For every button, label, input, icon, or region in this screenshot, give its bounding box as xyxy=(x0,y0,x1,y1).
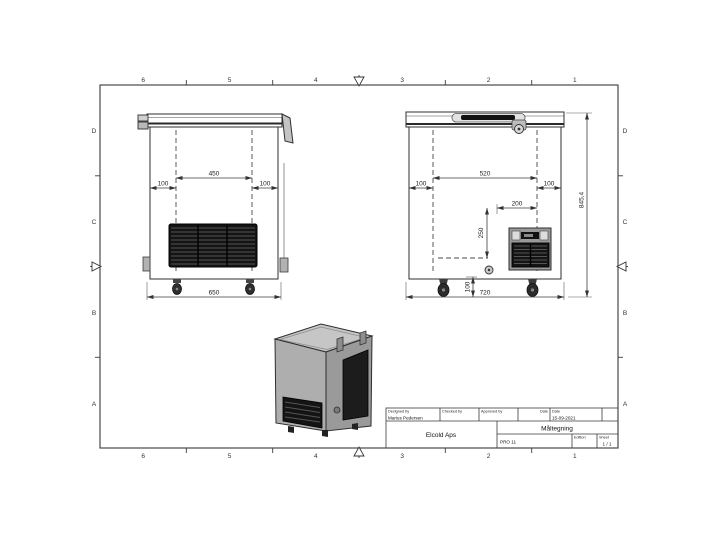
drawing-number: PRO 11 xyxy=(500,440,516,445)
lid-handle xyxy=(461,115,515,120)
dim-offset-y: 250 xyxy=(478,227,485,238)
zone-label-left: C xyxy=(92,219,97,226)
hinge-block xyxy=(138,122,148,129)
dim-offset-x: 200 xyxy=(512,201,523,208)
zone-label-top: 3 xyxy=(400,77,404,84)
date2-label: Date xyxy=(552,410,560,414)
designed-by-label: Designed by xyxy=(388,410,409,414)
drain-plug xyxy=(485,266,493,274)
dim-left-inset: 100 xyxy=(158,181,169,188)
iso-foot xyxy=(288,426,294,433)
sheet-label: Sheet xyxy=(599,436,610,440)
drawing-title: Måltegning xyxy=(541,425,573,433)
iso-hinge xyxy=(360,331,366,345)
zone-label-bottom: 1 xyxy=(573,453,577,460)
iso-foot xyxy=(322,430,328,437)
zone-label-bottom: 4 xyxy=(314,453,318,460)
center-mark-right xyxy=(617,262,628,271)
freezer-lid xyxy=(147,114,282,127)
zone-label-top: 2 xyxy=(487,77,491,84)
caster-wheel xyxy=(173,279,182,295)
center-mark-left xyxy=(90,262,101,271)
hinge-bracket-lower xyxy=(280,258,288,272)
zone-label-bottom: 5 xyxy=(228,453,232,460)
company-name: Elcold Aps xyxy=(426,432,457,439)
lid-lock xyxy=(512,120,526,134)
dim-left-inset: 100 xyxy=(416,181,427,188)
iso-hinge xyxy=(337,337,343,352)
checked-by-label: Checked by xyxy=(442,410,462,414)
sheet-value: 1 / 1 xyxy=(603,442,612,447)
lid-corner-bracket xyxy=(282,114,293,143)
caster-wheel xyxy=(246,279,255,295)
rear-view: 450 100 100 650 xyxy=(138,114,293,300)
zone-label-bottom: 2 xyxy=(487,453,491,460)
designed-by-value: Marius Pedersen xyxy=(388,416,423,421)
center-mark-top xyxy=(354,75,364,86)
condenser-grille xyxy=(169,224,257,267)
zone-label-right: C xyxy=(623,219,628,226)
technical-drawing: 6 5 4 3 2 1 6 5 4 3 2 1 D C B A D C B A xyxy=(0,0,720,540)
iso-foot xyxy=(352,423,358,430)
hinge-block xyxy=(138,115,148,121)
iso-back-recess xyxy=(343,350,368,420)
dim-overall-height: 845,4 xyxy=(579,191,586,208)
dim-inner-width: 520 xyxy=(480,171,491,178)
dim-right-inset: 100 xyxy=(544,181,555,188)
dim-right-inset: 100 xyxy=(260,181,271,188)
date1-label: Date xyxy=(540,410,548,414)
isometric-view xyxy=(275,324,372,437)
side-tab xyxy=(143,257,150,271)
zone-label-top: 6 xyxy=(141,77,145,84)
panel-button xyxy=(540,231,548,240)
edition-label: Edition xyxy=(574,436,586,440)
date-value: 15-09-2021 xyxy=(552,416,576,421)
zone-label-left: A xyxy=(92,401,97,408)
zone-label-left: B xyxy=(92,310,96,317)
zone-label-right: A xyxy=(623,401,628,408)
front-view: 520 100 100 200 250 100 720 845,4 xyxy=(406,112,592,300)
dim-overall-width: 650 xyxy=(209,290,220,297)
zone-label-top: 1 xyxy=(573,77,577,84)
dim-bottom-offset: 100 xyxy=(465,281,472,292)
cad-drawing-page: 6 5 4 3 2 1 6 5 4 3 2 1 D C B A D C B A xyxy=(0,0,720,540)
caster-wheel xyxy=(438,279,449,297)
zone-label-bottom: 6 xyxy=(141,453,145,460)
zone-label-right: B xyxy=(623,310,627,317)
dim-inner-width: 450 xyxy=(209,171,220,178)
caster-wheel xyxy=(527,279,538,297)
zone-label-top: 5 xyxy=(228,77,232,84)
zone-label-right: D xyxy=(623,128,628,135)
dim-overall-width: 720 xyxy=(480,290,491,297)
approved-by-label: Approved by xyxy=(481,410,502,414)
center-mark-bottom xyxy=(354,447,364,458)
zone-label-bottom: 3 xyxy=(400,453,404,460)
compressor-unit xyxy=(509,228,551,270)
title-block: Designed by Marius Pedersen Checked by A… xyxy=(386,408,618,448)
panel-button xyxy=(512,231,520,240)
zone-label-top: 4 xyxy=(314,77,318,84)
iso-compressor-detail xyxy=(334,407,340,413)
zone-label-left: D xyxy=(92,128,97,135)
